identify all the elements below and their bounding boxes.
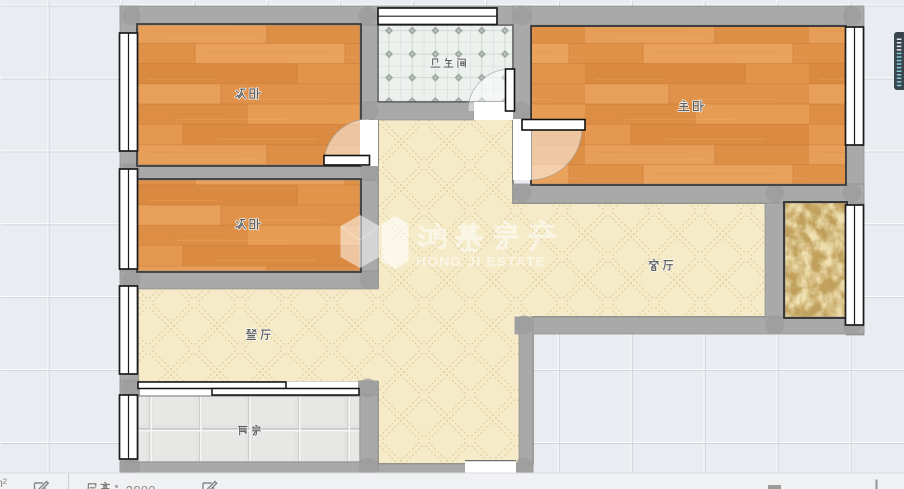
svg-text:m²: m² [0, 476, 7, 489]
svg-text:HONG JI ESTATE: HONG JI ESTATE [416, 255, 546, 269]
svg-text:2800: 2800 [126, 483, 156, 489]
